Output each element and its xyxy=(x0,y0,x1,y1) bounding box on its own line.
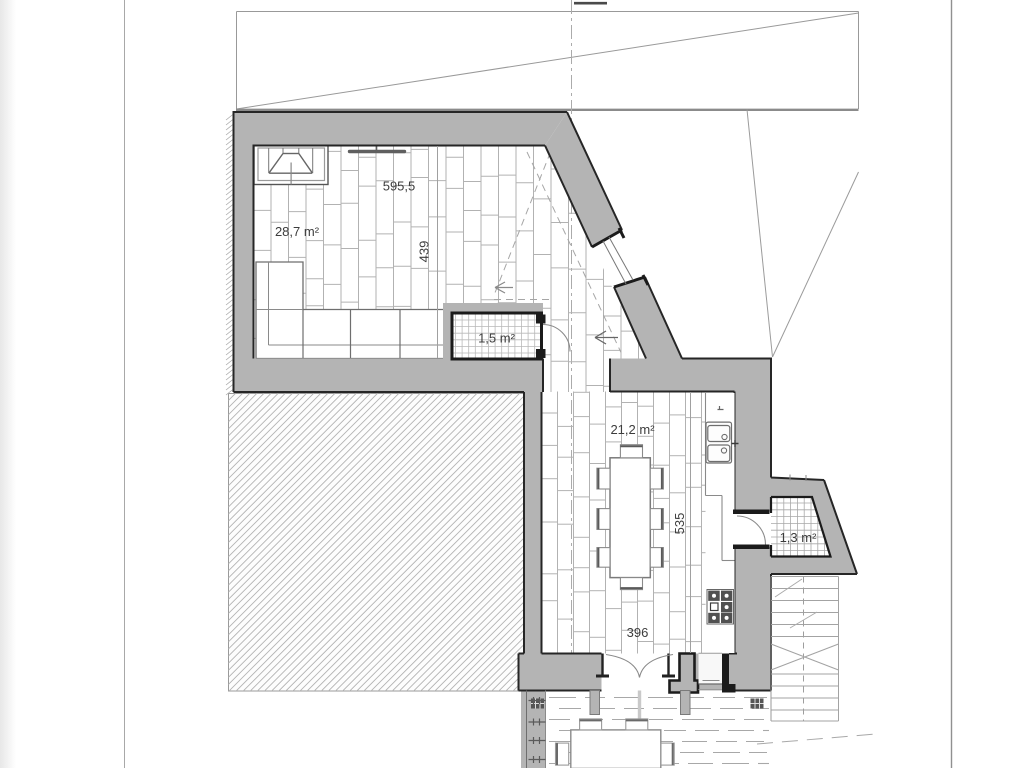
svg-text:28,7 m²: 28,7 m² xyxy=(275,224,320,239)
svg-text:535: 535 xyxy=(672,513,687,535)
svg-text:1,5 m²: 1,5 m² xyxy=(478,330,516,345)
svg-text:1,3 m²: 1,3 m² xyxy=(780,530,818,545)
svg-text:21,2 m²: 21,2 m² xyxy=(610,422,655,437)
svg-text:396: 396 xyxy=(627,625,649,640)
svg-text:439: 439 xyxy=(416,241,431,263)
svg-text:595,5: 595,5 xyxy=(383,178,416,193)
